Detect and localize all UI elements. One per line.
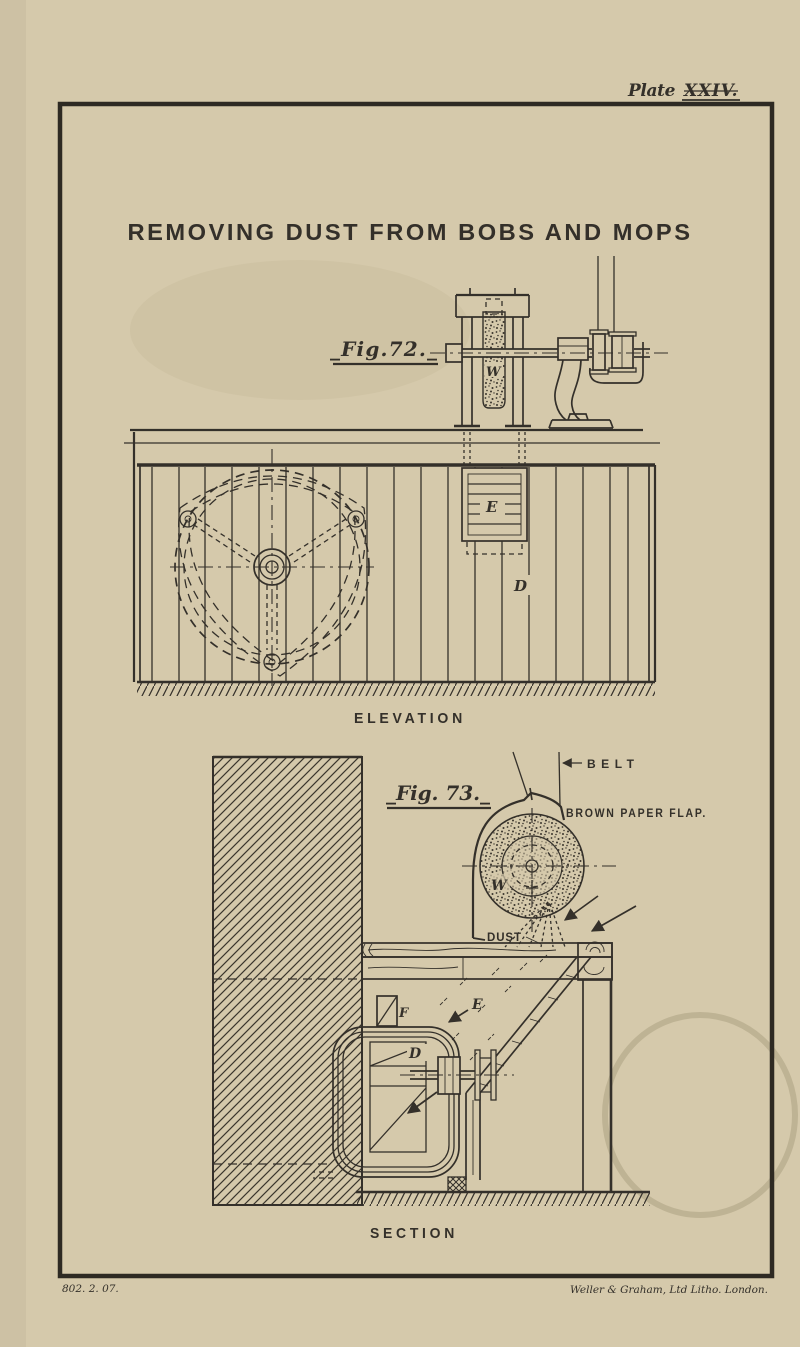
plate-number-label: Plate XXIV. <box>627 81 740 101</box>
flue-box <box>377 996 397 1026</box>
elevation-caption: ELEVATION <box>354 710 466 727</box>
label-wheel-section: W <box>491 878 508 894</box>
foot-block <box>448 1177 466 1192</box>
label-trunk: D <box>408 1046 422 1062</box>
label-box-elevation: E <box>485 498 498 516</box>
imprint-printer: Weller & Graham, Ltd Litho. London. <box>570 1284 768 1296</box>
ground-elevation <box>137 682 655 696</box>
pulley-right <box>612 336 633 368</box>
flap-label: BROWN PAPER FLAP. <box>566 806 707 820</box>
buff-wheel-edge <box>483 312 505 408</box>
label-flue-box: F <box>398 1006 409 1021</box>
ground-section <box>356 1192 650 1206</box>
belt-label: BELT <box>587 757 637 771</box>
hanging-box: E <box>462 468 527 554</box>
label-wheel-elevation: W <box>486 365 502 380</box>
paper-stain <box>130 260 470 400</box>
pulley-left <box>593 334 605 370</box>
section-wall <box>213 757 362 1205</box>
bearing-block <box>558 338 588 360</box>
plate-scan: Plate XXIV. REMOVING DUST FROM BOBS AND … <box>0 0 800 1347</box>
label-screen-elevation: D <box>513 577 527 595</box>
section-caption: SECTION <box>370 1225 458 1242</box>
fig72-label: _Fig.72._ <box>330 337 437 361</box>
label-chamber: E <box>471 997 483 1013</box>
plate-page: Plate XXIV. REMOVING DUST FROM BOBS AND … <box>0 0 800 1347</box>
imprint-number: 802. 2. 07. <box>62 1283 119 1295</box>
fig73-label: _Fig. 73._ <box>386 781 490 805</box>
plate-title: REMOVING DUST FROM BOBS AND MOPS <box>128 219 693 245</box>
scan-edge-shadow <box>0 0 26 1347</box>
plate-word: Plate <box>627 81 677 101</box>
